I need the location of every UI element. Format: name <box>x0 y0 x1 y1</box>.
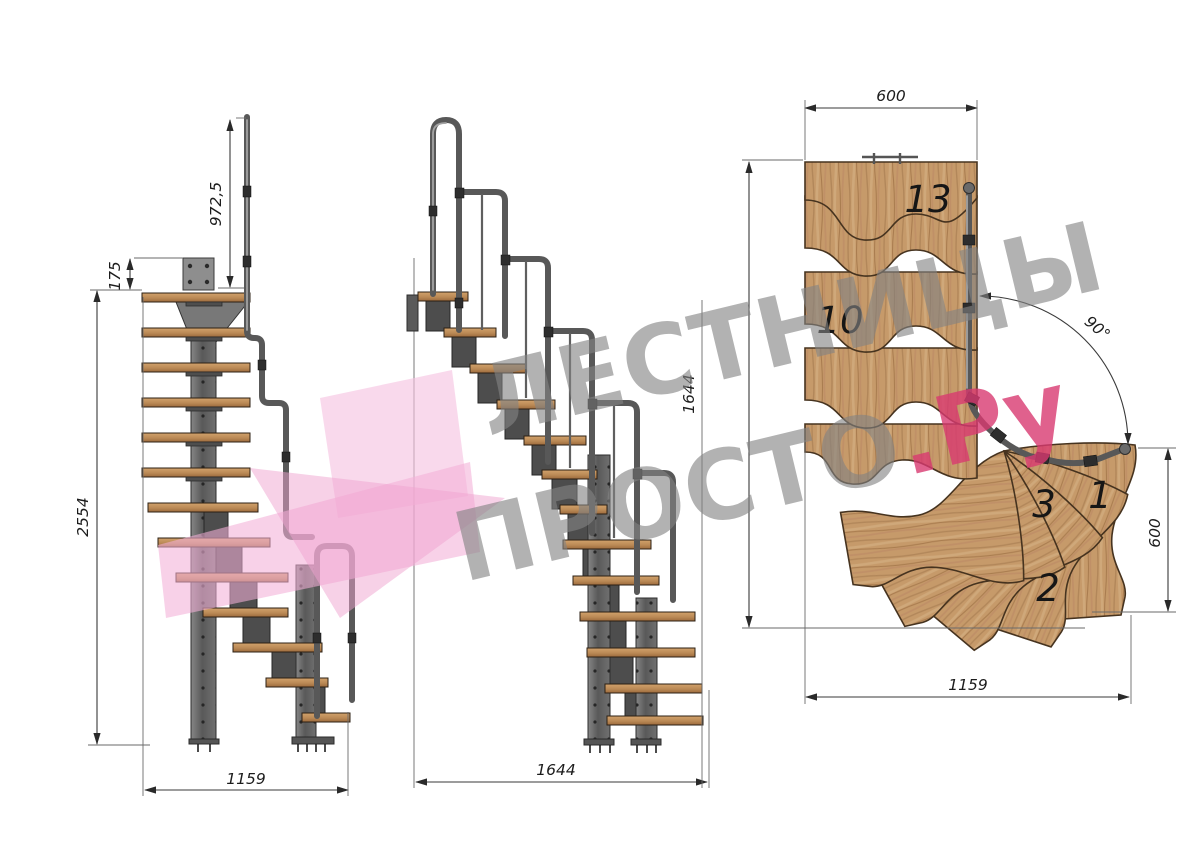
rail-end-cap <box>964 183 975 194</box>
rail-coupler <box>501 255 510 265</box>
dim-label-front-run: 1644 <box>536 761 575 779</box>
dim-2554: 2554 <box>74 290 150 745</box>
support-base-plate <box>292 737 334 744</box>
dim-175: 175 <box>106 258 183 291</box>
step-label-2: 2 <box>1036 567 1060 610</box>
tread <box>142 398 250 407</box>
tread <box>587 648 695 657</box>
dim-1644-front: 1644 <box>416 690 709 788</box>
mounting-plate <box>183 258 214 290</box>
tread <box>142 468 250 477</box>
front-anchor-ticks <box>590 745 656 753</box>
rail-coupler <box>243 256 251 267</box>
rail-coupler <box>429 206 437 216</box>
dim-label-top-plate: 175 <box>106 261 124 291</box>
dim-label-entry-width: 600 <box>1146 518 1164 548</box>
tread <box>148 503 258 512</box>
tread <box>573 576 659 585</box>
front-base-left <box>584 739 614 745</box>
tread <box>444 328 496 337</box>
rail-coupler <box>258 360 266 370</box>
rail-coupler <box>348 633 356 643</box>
tread <box>580 612 695 621</box>
stair-drawing: 972,5 175 2554 1159 <box>0 0 1200 849</box>
tread <box>142 293 250 302</box>
rail-coupler <box>455 188 464 198</box>
view-side-elevation: 972,5 175 2554 1159 <box>74 117 356 796</box>
drawing-page: 972,5 175 2554 1159 <box>0 0 1200 849</box>
rail-coupler <box>1083 455 1097 467</box>
tread <box>203 608 288 617</box>
tread <box>142 433 250 442</box>
front-base-right <box>631 739 661 745</box>
dim-label-total-height: 2554 <box>74 497 92 536</box>
rail-end-cap <box>1120 444 1131 455</box>
tread <box>233 643 322 652</box>
tread <box>302 713 350 722</box>
tread <box>142 328 250 337</box>
dim-label-landing-width: 600 <box>876 87 906 105</box>
rail-coupler <box>282 452 290 462</box>
dim-label-rail-height: 972,5 <box>207 182 225 226</box>
step-label-1: 1 <box>1088 474 1112 517</box>
step-label-13: 13 <box>904 178 951 221</box>
wall-bracket <box>407 295 418 331</box>
anchor-ticks <box>298 744 325 752</box>
rail-coupler <box>455 298 463 308</box>
tread <box>605 684 702 693</box>
step-label-3: 3 <box>1032 483 1056 526</box>
rail-coupler <box>313 633 321 643</box>
column-base <box>189 739 219 744</box>
dim-600-top: 600 <box>805 87 977 160</box>
rail-coupler <box>243 186 251 197</box>
dim-label-overall-run: 1159 <box>948 676 987 694</box>
dim-label-run: 1159 <box>226 770 265 788</box>
dim-label-turn-angle: 90° <box>1081 312 1114 343</box>
tread <box>607 716 703 725</box>
tread <box>142 363 250 372</box>
